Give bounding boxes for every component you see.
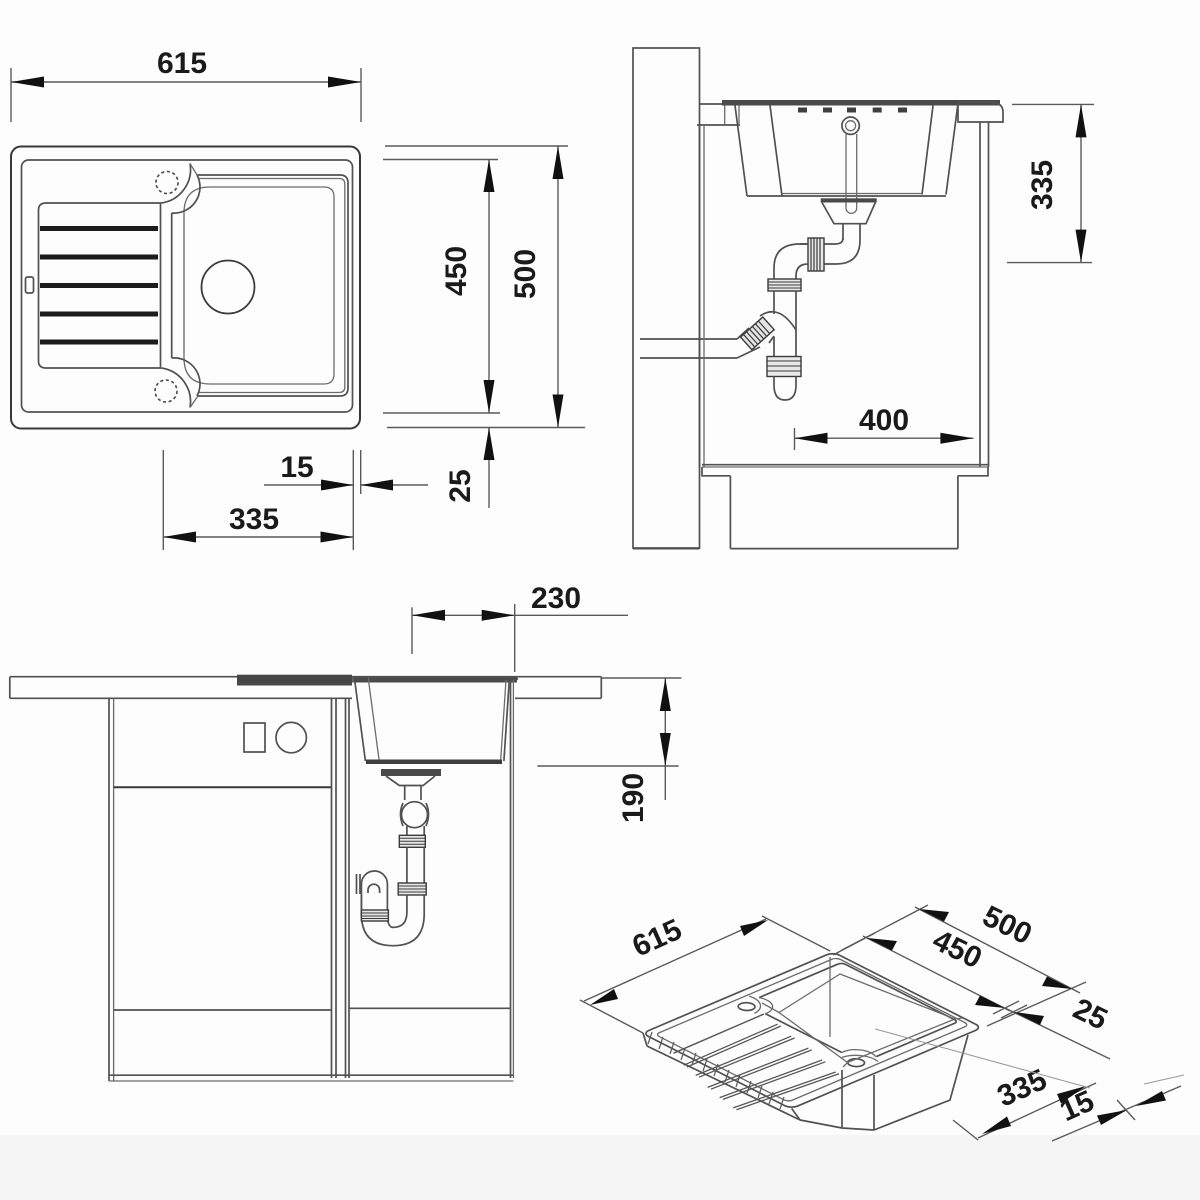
svg-text:500: 500 (509, 249, 542, 299)
svg-text:335: 335 (1026, 160, 1059, 210)
svg-text:615: 615 (157, 47, 207, 80)
svg-text:25: 25 (444, 469, 477, 502)
svg-text:190: 190 (617, 773, 650, 823)
svg-text:335: 335 (229, 503, 279, 536)
svg-text:450: 450 (440, 246, 473, 296)
svg-text:230: 230 (531, 582, 581, 615)
svg-text:400: 400 (859, 404, 909, 437)
svg-text:15: 15 (280, 451, 313, 484)
